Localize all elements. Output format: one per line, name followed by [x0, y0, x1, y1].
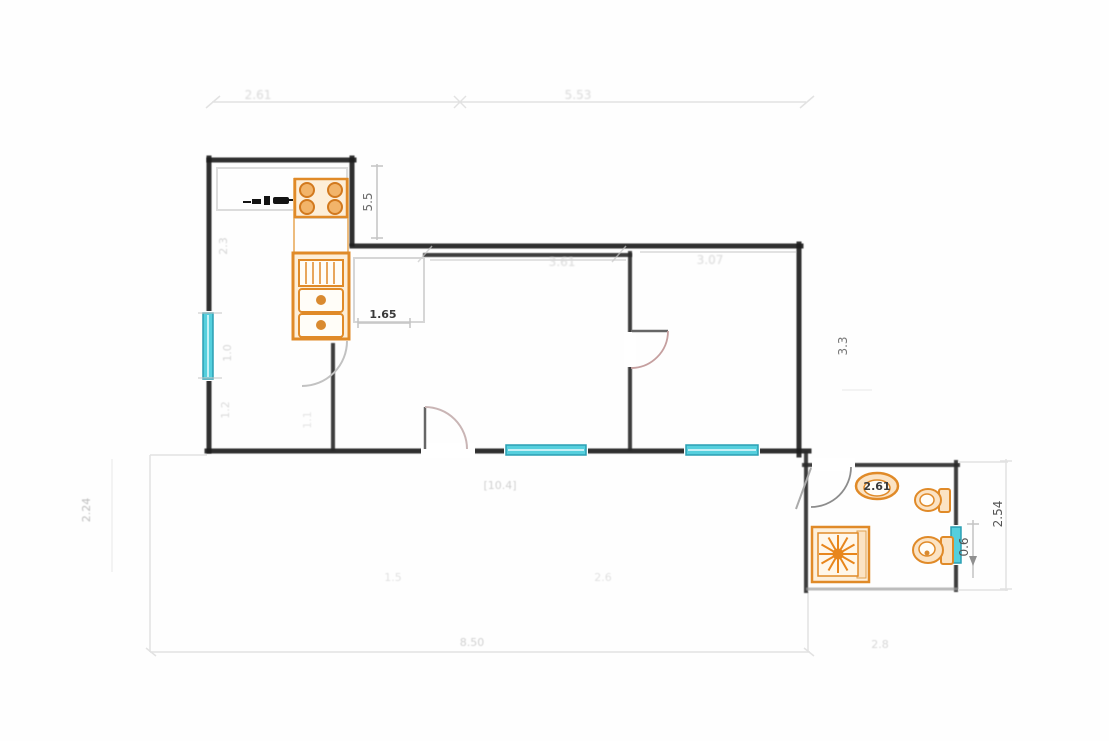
dim-bath-width: 2.61	[863, 480, 890, 493]
kitchen-door-arc	[302, 341, 347, 386]
dim-top-right: 5.53	[565, 88, 592, 102]
kitchen-sink	[293, 253, 349, 339]
sink-drain-2	[316, 320, 326, 330]
top-dimension-line	[206, 96, 814, 108]
bedroom-door-opening	[624, 332, 636, 367]
dim-terrace-left: 2.24	[80, 498, 93, 523]
entrance-door-arc	[425, 407, 467, 449]
dimensions: 2.61 5.53 5.5 1.65 2.61 0.6 2.54 2.24 2.…	[80, 88, 1012, 651]
floor-plan-svg: 2.61 5.53 5.5 1.65 2.61 0.6 2.54 2.24 2.…	[0, 0, 1109, 741]
dim-bottom-total: 8.50	[460, 636, 485, 649]
floor-plan: 2.61 5.53 5.5 1.65 2.61 0.6 2.54 2.24 2.…	[0, 0, 1109, 741]
toilet	[913, 537, 953, 564]
dim-kitchen-window: 1.0	[221, 344, 234, 362]
bathroom-door-arc	[811, 467, 851, 507]
shower-drain	[833, 549, 844, 560]
bidet	[915, 489, 950, 512]
dim-top-left: 2.61	[245, 88, 272, 102]
kitchen-fixtures	[217, 168, 424, 386]
bathroom-door-opening	[812, 458, 855, 471]
dim-terrace-area: [10.4]	[483, 479, 516, 492]
terrace-outline	[146, 455, 814, 656]
dim-kitchen-lower: 1.2	[219, 401, 232, 419]
dim-bath-window: 0.6	[957, 537, 971, 556]
dim-bath-right: 2.54	[991, 501, 1005, 528]
dim-stove-side: 5.5	[361, 192, 375, 211]
bathroom-door-leaf	[796, 468, 811, 509]
terrace-edge	[150, 455, 810, 652]
dim-bedroom-top: 3.07	[697, 253, 724, 267]
shower	[812, 527, 869, 582]
kitchen-counter-column	[294, 218, 348, 254]
dim-kitchen-wall: 2.3	[217, 237, 230, 255]
drainboard	[299, 260, 343, 286]
kitchen-faucet	[243, 196, 298, 205]
dim-terrace-b: 2.6	[594, 571, 612, 584]
dim-right-mid: 3.3	[836, 336, 850, 355]
dim-hall: 1.65	[369, 308, 396, 321]
dim-living-top: 3.61	[549, 255, 576, 269]
dim-terrace-a: 1.5	[384, 571, 402, 584]
sink-drain-1	[316, 295, 326, 305]
bedroom-door-arc	[631, 331, 668, 368]
stove	[295, 179, 347, 217]
dim-kitchen-lower-b: 1.1	[301, 411, 314, 429]
dim-bath-bottom: 2.8	[871, 638, 889, 651]
